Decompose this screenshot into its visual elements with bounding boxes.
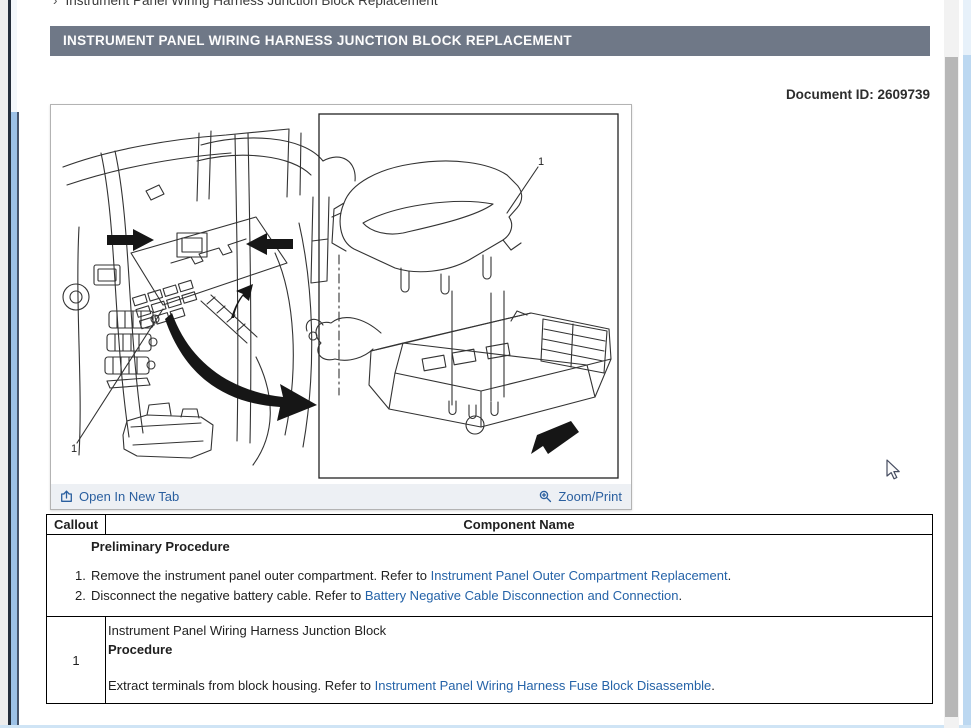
left-strip-top bbox=[11, 0, 17, 112]
procedure-step-text: Extract terminals from block housing. Re… bbox=[108, 678, 375, 693]
figure-frame bbox=[319, 114, 618, 478]
zoom-magnifier-icon bbox=[539, 490, 552, 503]
step-suffix: . bbox=[728, 568, 732, 583]
callout-number-cell: 1 bbox=[47, 617, 106, 704]
zoom-print-label: Zoom/Print bbox=[558, 489, 622, 504]
procedure-label: Procedure bbox=[108, 640, 924, 659]
component-table: Callout Component Name Preliminary Proce… bbox=[46, 514, 933, 704]
callout-header: Callout bbox=[47, 515, 106, 535]
figure-callout-right: 1 bbox=[538, 156, 544, 168]
spacer bbox=[108, 659, 924, 676]
component-name: Instrument Panel Wiring Harness Junction… bbox=[108, 621, 924, 640]
left-strip-border bbox=[17, 112, 19, 728]
technical-illustration[interactable]: 1 bbox=[51, 105, 631, 484]
table-header-row: Callout Component Name bbox=[47, 515, 933, 535]
mouse-cursor bbox=[886, 459, 902, 481]
page-title-text: INSTRUMENT PANEL WIRING HARNESS JUNCTION… bbox=[63, 33, 572, 48]
fuse-block-disassemble-link[interactable]: Instrument Panel Wiring Harness Fuse Blo… bbox=[375, 678, 712, 693]
preliminary-steps: 1.Remove the instrument panel outer comp… bbox=[91, 566, 924, 606]
preliminary-step-1: 1.Remove the instrument panel outer comp… bbox=[75, 566, 924, 586]
step-number: 2. bbox=[75, 586, 91, 606]
component-name-header: Component Name bbox=[106, 515, 933, 535]
chevron-right-icon: › bbox=[53, 0, 58, 8]
breadcrumb[interactable]: ›Instrument Panel Wiring Harness Junctio… bbox=[53, 0, 438, 8]
right-strip-top bbox=[963, 0, 971, 55]
vertical-scrollbar[interactable] bbox=[944, 0, 959, 728]
preliminary-procedure-title: Preliminary Procedure bbox=[91, 540, 924, 554]
procedure-step: Extract terminals from block housing. Re… bbox=[108, 676, 924, 695]
open-in-new-tab-label: Open In New Tab bbox=[79, 489, 179, 504]
open-in-new-tab-link[interactable]: Open In New Tab bbox=[60, 489, 179, 504]
breadcrumb-label[interactable]: Instrument Panel Wiring Harness Junction… bbox=[66, 0, 438, 8]
battery-negative-cable-disconnection-link[interactable]: Battery Negative Cable Disconnection and… bbox=[365, 588, 679, 603]
step-text: Disconnect the negative battery cable. R… bbox=[91, 588, 365, 603]
step-suffix: . bbox=[679, 588, 683, 603]
figure-callout-left: 1 bbox=[71, 443, 77, 455]
instrument-panel-outer-compartment-replacement-link[interactable]: Instrument Panel Outer Compartment Repla… bbox=[431, 568, 728, 583]
step-number: 1. bbox=[75, 566, 91, 586]
component-cell: Instrument Panel Wiring Harness Junction… bbox=[106, 617, 933, 704]
procedure-step-suffix: . bbox=[711, 678, 715, 693]
step-text: Remove the instrument panel outer compar… bbox=[91, 568, 431, 583]
page-title: INSTRUMENT PANEL WIRING HARNESS JUNCTION… bbox=[50, 26, 930, 56]
open-in-new-tab-icon bbox=[60, 490, 73, 503]
zoom-print-link[interactable]: Zoom/Print bbox=[539, 489, 622, 504]
preliminary-step-2: 2.Disconnect the negative battery cable.… bbox=[75, 586, 924, 606]
preliminary-procedure-row: Preliminary Procedure 1.Remove the instr… bbox=[47, 535, 933, 617]
figure-toolbar: Open In New Tab Zoom/Print bbox=[51, 484, 631, 509]
document-id: Document ID: 2609739 bbox=[50, 87, 930, 102]
component-row: 1 Instrument Panel Wiring Harness Juncti… bbox=[47, 617, 933, 704]
scrollbar-thumb[interactable] bbox=[945, 57, 958, 717]
service-info-page: ›Instrument Panel Wiring Harness Junctio… bbox=[0, 0, 971, 728]
background-window-edge bbox=[0, 0, 8, 728]
right-blue-strip bbox=[963, 0, 971, 728]
figure-panel: 1 bbox=[50, 104, 632, 510]
